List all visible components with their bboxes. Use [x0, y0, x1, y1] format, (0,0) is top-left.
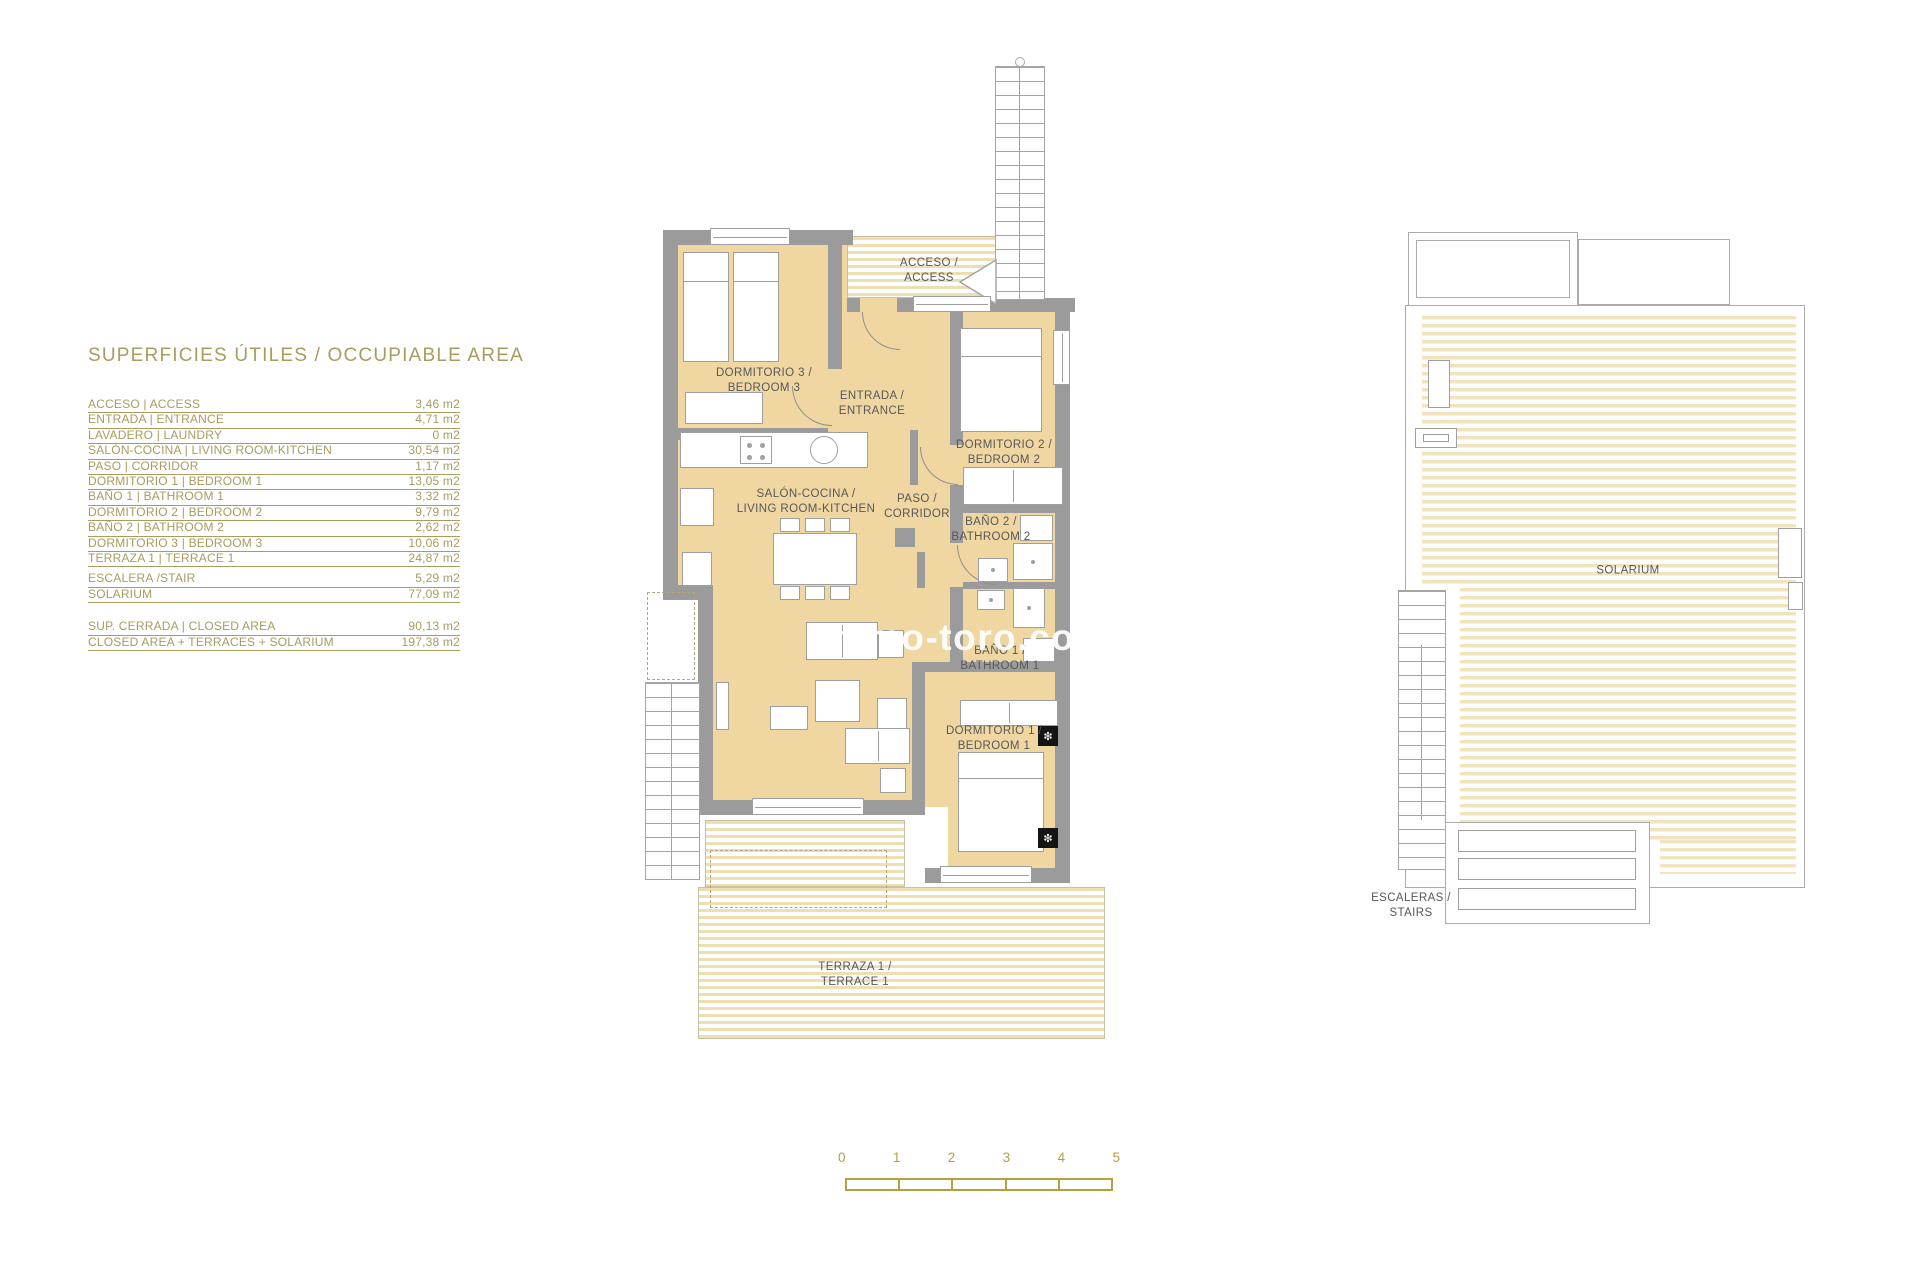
room-label-acceso: ACCESO / ACCESS	[900, 256, 958, 286]
wall	[663, 230, 678, 588]
window	[752, 798, 864, 815]
scale-segment	[1007, 1180, 1060, 1189]
stair-handrail-post	[1015, 57, 1025, 67]
table-row: SUP. CERRADA | CLOSED AREA90,13 m2	[88, 620, 460, 635]
room-label-dormitorio2: DORMITORIO 2 / BEDROOM 2	[956, 438, 1052, 468]
row-value: 197,38 m2	[401, 636, 460, 649]
bed	[960, 328, 1042, 432]
row-label: DORMITORIO 1 | BEDROOM 1	[88, 475, 262, 488]
terrace-area	[698, 887, 1105, 1039]
window	[940, 866, 1032, 883]
table-row: BAÑO 1 | BATHROOM 13,32 m2	[88, 490, 460, 505]
row-label: ESCALERA /STAIR	[88, 572, 195, 585]
fixture-icon: ❇	[1038, 828, 1058, 848]
stair-dashed-outline	[647, 592, 695, 680]
table-row: DORMITORIO 3 | BEDROOM 310,06 m2	[88, 537, 460, 552]
table-row: CLOSED AREA + TERRACES + SOLARIUM197,38 …	[88, 636, 460, 651]
floor-plan-sheet: SUPERFICIES ÚTILES / OCCUPIABLE AREA ACC…	[0, 0, 1920, 1280]
wall	[828, 244, 842, 369]
planter	[1458, 888, 1636, 910]
scale-tick-label: 1	[893, 1150, 901, 1165]
table-row: PASO | CORRIDOR1,17 m2	[88, 460, 460, 475]
table-row: ESCALERA /STAIR5,29 m2	[88, 572, 460, 587]
row-value: 3,46 m2	[415, 398, 460, 411]
fridge	[680, 488, 714, 526]
room-label-dormitorio3: DORMITORIO 3 / BEDROOM 3	[716, 366, 812, 396]
chair	[830, 518, 850, 532]
row-label: SOLARIUM	[88, 588, 152, 601]
shower	[1013, 543, 1053, 580]
watermark: immo-toro.co	[821, 617, 1075, 659]
room-label-terraza: TERRAZA 1 / TERRACE 1	[818, 960, 891, 990]
stair-center-line	[671, 682, 672, 880]
row-value: 2,62 m2	[415, 521, 460, 534]
table-row: DORMITORIO 2 | BEDROOM 29,79 m2	[88, 506, 460, 521]
chair	[780, 586, 800, 600]
row-value: 24,87 m2	[408, 552, 460, 565]
chair	[805, 518, 825, 532]
wall	[1055, 298, 1070, 883]
stair-center-line	[1019, 66, 1020, 300]
row-label: LAVADERO | LAUNDRY	[88, 429, 222, 442]
wall	[847, 298, 860, 312]
roof-vent	[1788, 582, 1803, 610]
row-label: SUP. CERRADA | CLOSED AREA	[88, 620, 276, 633]
room-label-paso: PASO / CORRIDOR	[884, 492, 950, 522]
armchair	[770, 706, 808, 730]
sofa	[845, 728, 910, 764]
row-value: 4,71 m2	[415, 413, 460, 426]
scale-tick-label: 0	[838, 1150, 846, 1165]
terrace-dashed-outline	[710, 850, 887, 908]
scale-tick-label: 3	[1003, 1150, 1011, 1165]
kitchen-counter	[680, 432, 868, 468]
row-label: ENTRADA | ENTRANCE	[88, 413, 224, 426]
window	[1053, 330, 1070, 385]
row-label: CLOSED AREA + TERRACES + SOLARIUM	[88, 636, 334, 649]
dresser	[685, 392, 763, 424]
cupboard	[682, 552, 712, 586]
dining-table	[773, 533, 857, 585]
wall-pillar	[895, 528, 915, 547]
wall	[963, 505, 1068, 513]
row-label: BAÑO 1 | BATHROOM 1	[88, 490, 224, 503]
wall	[910, 430, 918, 485]
row-value: 9,79 m2	[415, 506, 460, 519]
room-label-solarium: SOLARIUM	[1596, 563, 1659, 578]
roof-block	[1578, 239, 1730, 305]
wall	[917, 552, 925, 588]
wall	[912, 662, 925, 812]
washbasin	[977, 590, 1005, 610]
table-row: ENTRADA | ENTRANCE4,71 m2	[88, 413, 460, 428]
window	[710, 228, 790, 245]
row-value: 77,09 m2	[408, 588, 460, 601]
bed	[958, 752, 1044, 852]
table-row: SALÓN-COCINA | LIVING ROOM-KITCHEN30,54 …	[88, 444, 460, 459]
scale-tick-label: 2	[948, 1150, 956, 1165]
table-row: BAÑO 2 | BATHROOM 22,62 m2	[88, 521, 460, 536]
planter	[1458, 858, 1636, 880]
kitchen-sink	[810, 436, 838, 464]
row-value: 1,17 m2	[415, 460, 460, 473]
row-value: 3,32 m2	[415, 490, 460, 503]
scale-tick-label: 4	[1058, 1150, 1066, 1165]
room-label-dormitorio1: DORMITORIO 1 / BEDROOM 1	[946, 724, 1042, 754]
row-value: 0 m2	[433, 429, 460, 442]
room-label-salon: SALÓN-COCINA / LIVING ROOM-KITCHEN	[737, 487, 876, 517]
area-table: ACCESO | ACCESS3,46 m2 ENTRADA | ENTRANC…	[88, 398, 460, 651]
table-row: LAVADERO | LAUNDRY0 m2	[88, 429, 460, 444]
scale-segment	[953, 1180, 1006, 1189]
roof-vent	[1778, 528, 1802, 578]
coffee-table	[815, 680, 860, 722]
solarium-deck-extension	[1660, 840, 1796, 874]
chair	[780, 518, 800, 532]
row-label: TERRAZA 1 | TERRACE 1	[88, 552, 234, 565]
room-label-bano2: BAÑO 2 / BATHROOM 2	[951, 515, 1030, 545]
pouf	[880, 768, 906, 793]
page-title: SUPERFICIES ÚTILES / OCCUPIABLE AREA	[88, 345, 524, 367]
roof-stair	[1398, 590, 1446, 870]
scale-numbers: 0 1 2 3 4 5	[838, 1150, 1120, 1165]
row-label: DORMITORIO 2 | BEDROOM 2	[88, 506, 262, 519]
planter	[1458, 830, 1636, 852]
row-label: PASO | CORRIDOR	[88, 460, 199, 473]
wardrobe	[963, 467, 1063, 505]
row-value: 90,13 m2	[408, 620, 460, 633]
scale-segment	[900, 1180, 953, 1189]
exterior-stair	[995, 66, 1045, 300]
tv-unit	[716, 682, 729, 730]
room-label-entrada: ENTRADA / ENTRANCE	[839, 389, 905, 419]
row-label: ACCESO | ACCESS	[88, 398, 200, 411]
row-label: BAÑO 2 | BATHROOM 2	[88, 521, 224, 534]
table-row: ACCESO | ACCESS3,46 m2	[88, 398, 460, 413]
wardrobe	[960, 700, 1058, 726]
row-value: 13,05 m2	[408, 475, 460, 488]
table-row: SOLARIUM77,09 m2	[88, 588, 460, 603]
row-label: DORMITORIO 3 | BEDROOM 3	[88, 537, 262, 550]
scale-tick-label: 5	[1112, 1150, 1120, 1165]
row-label: SALÓN-COCINA | LIVING ROOM-KITCHEN	[88, 444, 332, 457]
roof-vent-inner	[1423, 434, 1449, 442]
scale-segment	[847, 1180, 900, 1189]
wall	[698, 597, 713, 815]
stove	[740, 436, 772, 464]
bed	[733, 252, 779, 362]
row-value: 30,54 m2	[408, 444, 460, 457]
stair-center-line	[1421, 645, 1422, 820]
chair	[805, 586, 825, 600]
left-stair	[645, 682, 700, 880]
table-row: TERRAZA 1 | TERRACE 124,87 m2	[88, 552, 460, 567]
bed	[683, 252, 729, 362]
window	[913, 296, 991, 312]
row-value: 10,06 m2	[408, 537, 460, 550]
scale-bar	[845, 1178, 1113, 1191]
row-value: 5,29 m2	[415, 572, 460, 585]
washbasin	[978, 558, 1008, 582]
chair	[830, 586, 850, 600]
table-row: DORMITORIO 1 | BEDROOM 113,05 m2	[88, 475, 460, 490]
room-label-escaleras: ESCALERAS / STAIRS	[1371, 891, 1451, 921]
scale-segment	[1060, 1180, 1111, 1189]
roof-vent	[1428, 360, 1450, 408]
roof-block-inner	[1416, 240, 1570, 298]
